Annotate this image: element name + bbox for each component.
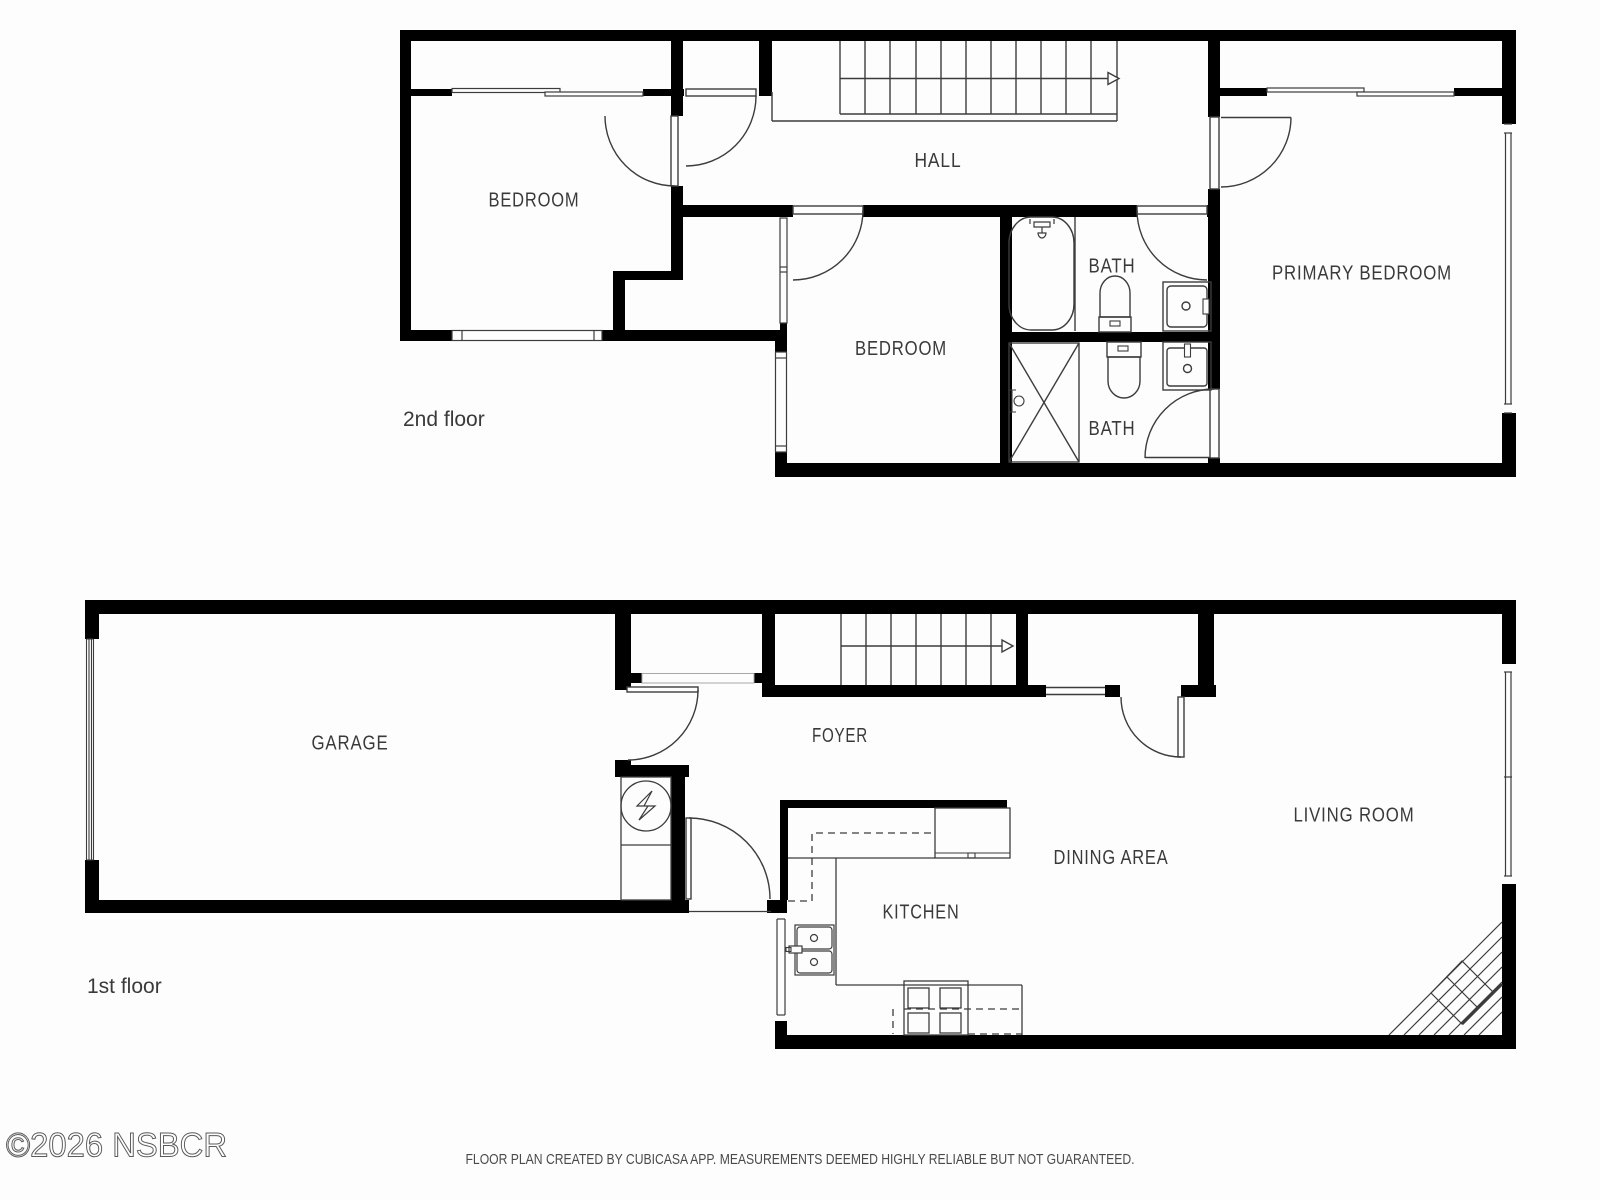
svg-text:BEDROOM: BEDROOM bbox=[489, 190, 580, 212]
svg-text:©2026 NSBCR: ©2026 NSBCR bbox=[6, 1127, 227, 1165]
svg-text:1st floor: 1st floor bbox=[87, 975, 162, 998]
svg-text:BATH: BATH bbox=[1089, 256, 1136, 278]
svg-text:LIVING ROOM: LIVING ROOM bbox=[1294, 805, 1415, 827]
svg-text:BEDROOM: BEDROOM bbox=[855, 338, 947, 360]
svg-text:2nd floor: 2nd floor bbox=[403, 408, 485, 431]
svg-text:GARAGE: GARAGE bbox=[312, 733, 389, 755]
svg-text:BATH: BATH bbox=[1089, 418, 1136, 440]
svg-text:HALL: HALL bbox=[915, 150, 962, 172]
svg-text:KITCHEN: KITCHEN bbox=[883, 902, 960, 924]
svg-text:FOYER: FOYER bbox=[812, 725, 868, 747]
svg-text:FLOOR PLAN CREATED BY CUBICASA: FLOOR PLAN CREATED BY CUBICASA APP. MEAS… bbox=[466, 1151, 1135, 1168]
svg-text:DINING AREA: DINING AREA bbox=[1054, 847, 1169, 869]
svg-text:PRIMARY BEDROOM: PRIMARY BEDROOM bbox=[1272, 263, 1452, 285]
